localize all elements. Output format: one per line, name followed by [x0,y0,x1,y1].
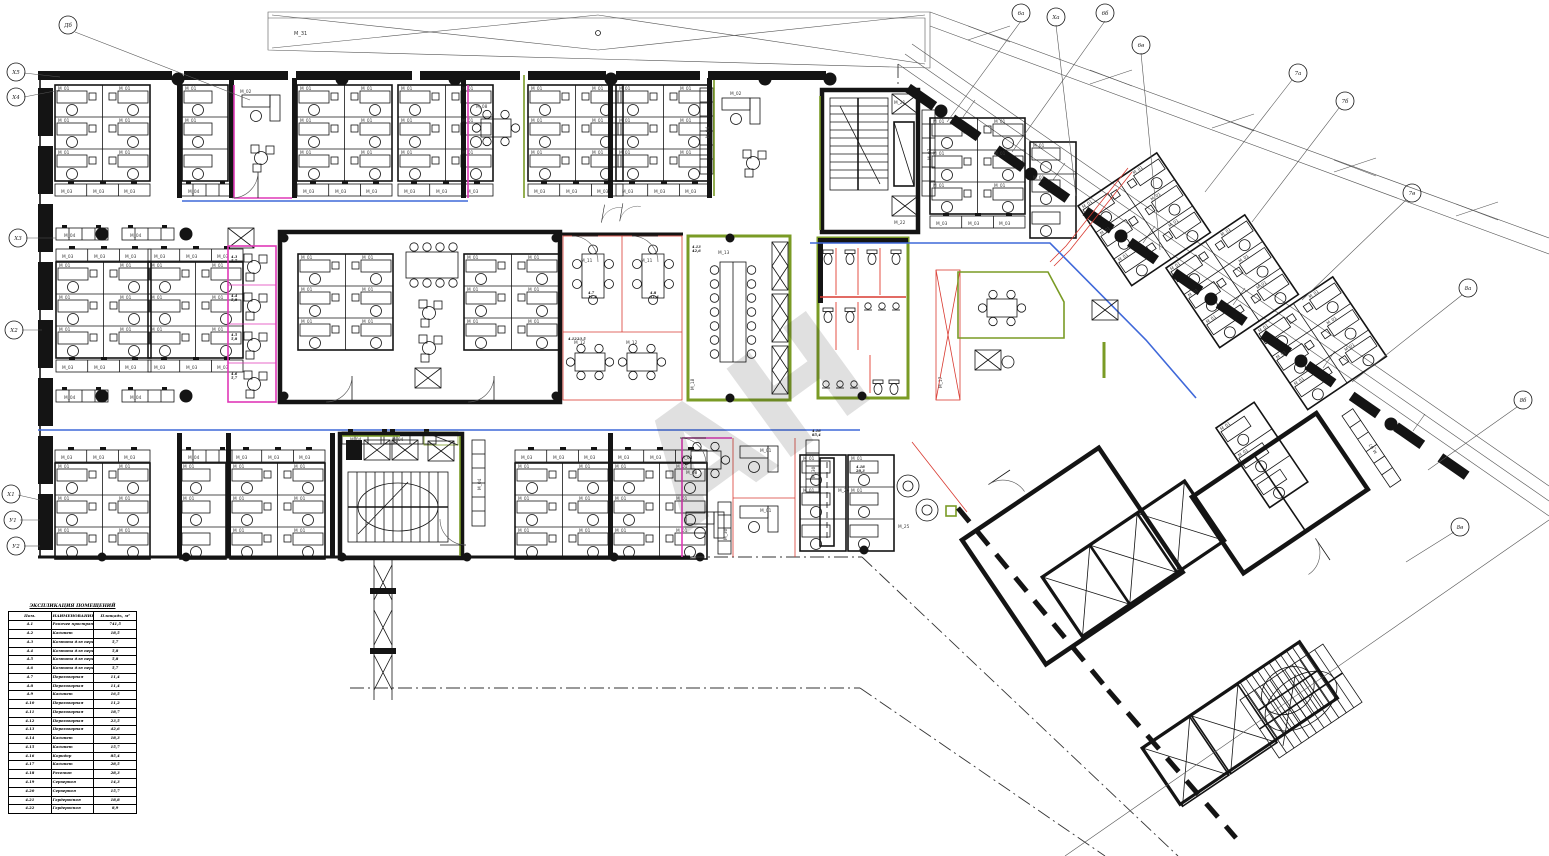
table-row: 4.17Кабинет28,5 [9,761,137,770]
schedule-title: ЭКСПЛИКАЦИЯ ПОМЕЩЕНИЙ [8,604,137,609]
svg-text:7в: 7в [1409,191,1416,197]
door [1294,538,1330,574]
office-desk [722,98,760,125]
grid-bubble: 6а [947,4,1030,122]
office-label: M_02 [240,89,252,95]
grid-bubble: 6б [1012,4,1114,152]
svg-text:Х1: Х1 [6,492,14,498]
svg-text:8а: 8а [1465,286,1472,292]
floor-plan-drawing: M_01 M_01 M_01 M_01 M_01 M_01 M_01 M_01 … [0,0,1549,856]
locker-strip [472,440,485,526]
rotated-core [958,413,1368,838]
schedule-header: Пом. [9,612,52,621]
desk-cluster [182,85,228,181]
meeting-rooms: M_11 M_11 M_12 M_12 4.711,4 4.811,4 4.12… [562,234,683,400]
table-8 [978,290,1025,325]
table-8 [472,110,519,145]
svg-text:11,4: 11,4 [650,295,659,299]
pantry-room [958,272,1064,370]
cabinet-strip [297,181,392,196]
right-wing-workstations [930,118,1401,508]
core-stair-block: M_21 M_22 [820,90,935,232]
cabinet-strip [398,181,493,196]
table-row: 4.12Переговорная23,5 [9,717,137,726]
svg-text:7а: 7а [1295,71,1302,77]
table-row: 4.15Кабинет15,7 [9,743,137,752]
table-row: 4.10Переговорная11,2 [9,700,137,709]
column [1295,355,1308,368]
table-label: M_08 [476,104,488,110]
grid-bubble: Х1 [2,485,40,503]
booth-seating [244,371,267,398]
door [326,376,352,402]
area-tag: 4.711,4 4.811,4 4.1223,5 [568,291,659,341]
lounge-label: M_25 [898,524,910,530]
svg-text:У2: У2 [12,544,20,550]
desk-cluster [930,118,1025,214]
lounge-table [419,300,442,327]
schedule-header: Площадь, м² [94,612,137,621]
braced-shaft: M_17 [936,270,960,400]
lounge-pouf [897,475,919,497]
core-label: M_22 [894,220,906,226]
svg-text:6а: 6а [1018,11,1025,17]
top-row-workstations [55,85,713,196]
core-rooms [1192,413,1368,573]
lounge-table [419,335,442,362]
table-row: 4.2Кабинет18,5 [9,629,137,638]
exterior-brace-truss [370,560,396,700]
table-row: 4.4Комната для переговоров по телефону5,… [9,647,137,656]
svg-text:Х4: Х4 [11,95,20,101]
grid-bubble: 8в [1406,518,1469,562]
grid-bubble: У2 [7,537,40,555]
table-row: 4.1Рабочее пространство "опен спейс"741,… [9,621,137,630]
grid-bubble: 7а [1205,64,1307,192]
table-row: 4.5Комната для переговоров по телефону5,… [9,656,137,665]
desk-cluster [55,463,150,559]
printer [975,350,1001,370]
svg-text:42,6: 42,6 [692,249,701,253]
table-row: 4.18Ресепшн28,3 [9,770,137,779]
svg-text:11,4: 11,4 [588,295,597,299]
middle-left-block [56,225,254,403]
section-line [862,557,1178,856]
table-row: 4.3Комната для переговоров по телефону5,… [9,638,137,647]
lounge-table [251,145,274,172]
desk-cluster [55,85,150,181]
table-row: 4.19Серверная14,3 [9,778,137,787]
schedule-body: 4.1Рабочее пространство "опен спейс"741,… [9,621,137,814]
desk-cluster [398,85,493,181]
stairs [348,472,448,542]
table-row: 4.13Переговорная42,6 [9,726,137,735]
desk-cluster [230,463,325,559]
svg-text:5,8: 5,8 [231,337,238,341]
stairwell [1240,644,1362,758]
svg-text:Х5: Х5 [11,70,20,76]
table-row: 4.21Гардеробная18,8 [9,796,137,805]
desk-cluster [464,254,559,350]
desk-cluster [298,254,393,350]
svg-text:28,3: 28,3 [855,469,865,473]
booth-seating [244,254,267,281]
desk-cluster [848,455,894,551]
desk-cluster [515,463,610,559]
meeting-label: M_11 [641,258,653,264]
lounge-table [743,150,766,177]
office-room-2: M_02 [714,80,766,196]
meeting-label: M_12 [626,340,638,346]
desk-cluster [616,85,711,181]
shaft [428,441,454,461]
door [620,203,641,224]
cabinet-strip [616,181,711,196]
grid-bubble: У1 [4,511,40,529]
table-row: 4.22Гардеробная8,9 [9,805,137,814]
stair-tower [340,434,466,558]
door [468,376,494,402]
grid-bubble: Дб [59,16,250,100]
table-row: 4.9Кабинет16,5 [9,691,137,700]
stairs [830,98,888,190]
printer [415,368,441,388]
shaft [892,196,918,216]
schedule-table: Пом. НАИМЕНОВАНИЕ Площадь, м² 4.1Рабочее… [8,611,137,814]
meeting-table [406,252,458,278]
svg-text:Дб: Дб [63,22,72,29]
door [601,205,622,226]
schedule-header-row: Пом. НАИМЕНОВАНИЕ Площадь, м² [9,612,137,621]
column [935,105,948,118]
conference-label: M_13 [718,250,730,256]
svg-text:Х3: Х3 [13,236,22,242]
facade-wall-dashed [908,88,1470,478]
office-room-1: M_02 [232,85,292,198]
table-row: 4.7Переговорная11,4 [9,673,137,682]
cabinet-strip [930,213,1025,228]
door [232,172,258,198]
svg-text:8б: 8б [1520,397,1527,404]
shaft-label: M_17 [938,376,944,388]
svg-text:6б: 6б [1102,10,1109,17]
table-row: 4.20Серверная15,7 [9,787,137,796]
column [1385,418,1398,431]
locker-strip [180,181,232,196]
table-row: 4.16Коридор85,4 [9,752,137,761]
desk-cluster [297,85,392,181]
table-row: 4.14Кабинет18,3 [9,735,137,744]
site-boundary [1065,520,1549,856]
table-row: 4.8Переговорная11,4 [9,682,137,691]
room-schedule: ЭКСПЛИКАЦИЯ ПОМЕЩЕНИЙ Пом. НАИМЕНОВАНИЕ … [8,604,137,814]
phone-booth-column: 4.35,7 4.45,8 4.55,8 4.65,7 [228,246,276,402]
grid-bubble: 7в [1302,184,1421,300]
grid-bubble: 6в [1132,36,1160,250]
svg-text:Ха: Ха [1051,15,1059,21]
facade-brace [772,242,788,290]
area-tag: 4.35,7 4.45,8 4.55,8 4.65,7 [231,255,238,380]
desk-cluster [1216,402,1308,507]
canopy-truss: M_31 [268,12,930,68]
booth-seating [244,332,267,359]
area-tag: 4.1342,6 [692,245,701,253]
desk-cluster [180,463,226,559]
svg-text:Х2: Х2 [9,328,18,334]
office-label: M_02 [730,91,742,97]
counter-label: M_26 [838,488,850,494]
svg-text:5,7: 5,7 [231,376,238,380]
svg-text:У1: У1 [9,518,16,524]
svg-text:5,8: 5,8 [231,298,238,302]
booth-seating [244,293,267,320]
desk-cluster [56,262,151,358]
lounge-pouf [916,499,938,521]
table-8 [618,344,665,379]
section-line [860,688,1105,856]
svg-text:23,5: 23,5 [576,337,586,341]
table-row: 4.6Комната для переговоров по телефону5,… [9,665,137,674]
core-label: M_21 [894,100,906,106]
svg-text:8в: 8в [1457,525,1464,531]
schedule-header: НАИМЕНОВАНИЕ [51,612,94,621]
meeting-label: M_11 [581,258,593,264]
canopy-label: M_31 [294,31,307,37]
cabinet-strip [55,181,150,196]
svg-text:7б: 7б [1342,98,1349,105]
svg-text:4.12: 4.12 [568,337,577,341]
svg-text:5,7: 5,7 [231,259,238,263]
central-open-space [280,232,561,402]
table-row: 4.11Переговорная18,7 [9,708,137,717]
grid-bubble: Х2 [5,321,42,339]
svg-text:6в: 6в [1138,43,1145,49]
table-8 [566,344,613,379]
right-wing-partitions [810,168,1196,398]
